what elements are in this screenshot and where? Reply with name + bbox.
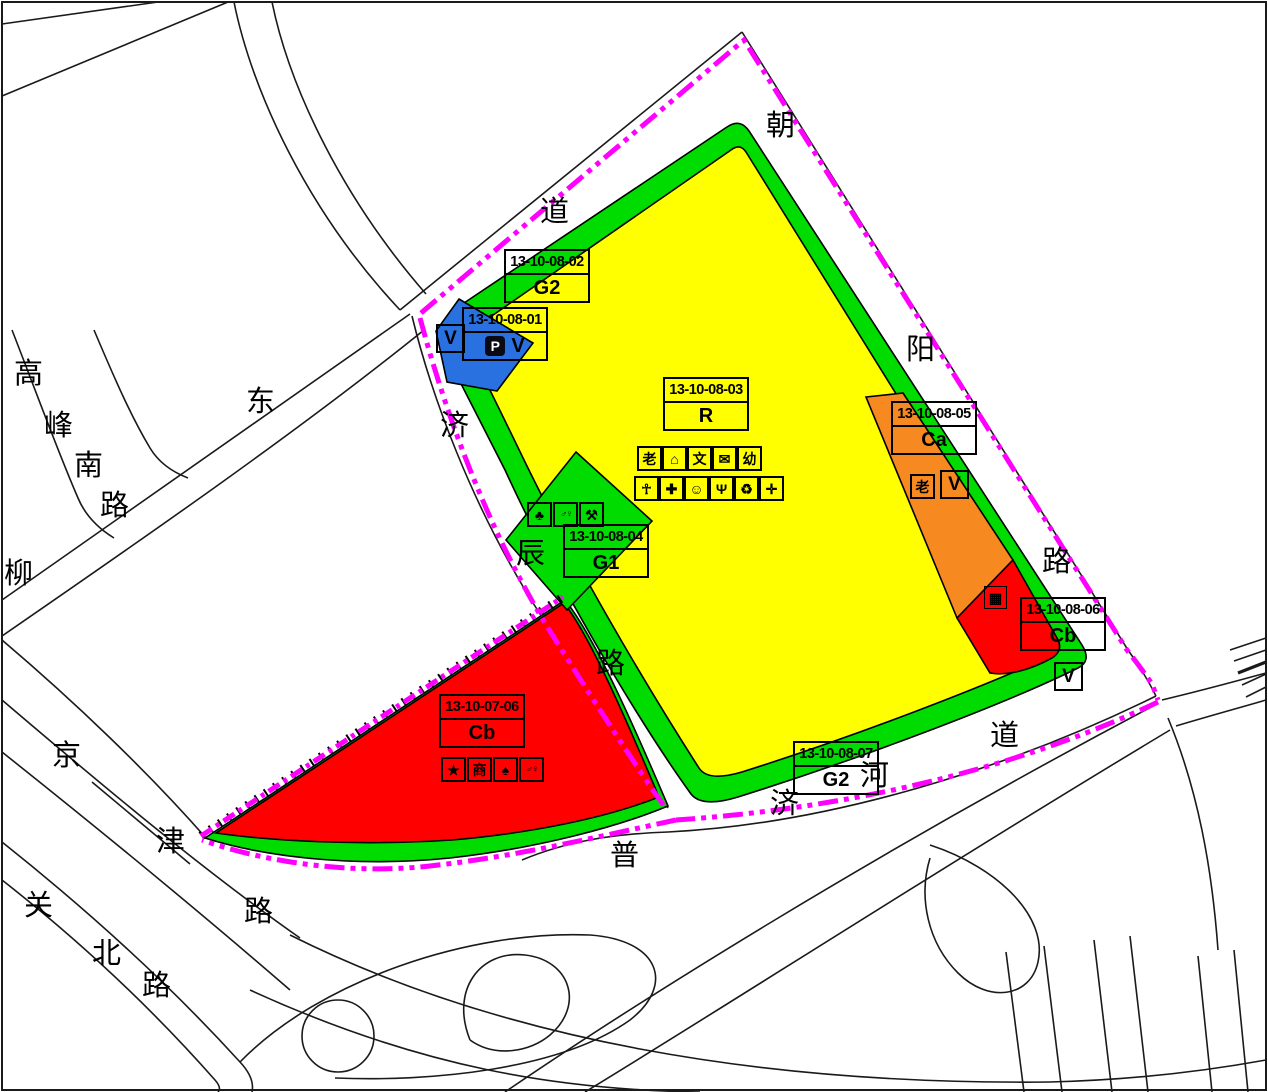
- culture-station-icon: 文: [687, 446, 712, 471]
- road-east-lane-5: [1246, 687, 1266, 697]
- road-label-guanbei-2: 北: [92, 940, 121, 969]
- road-label-dong: 东: [246, 388, 275, 417]
- road-label-jingjin-1: 京: [52, 742, 81, 771]
- road-br-2b: [1130, 936, 1148, 1092]
- road-label-dao: 道: [540, 198, 569, 227]
- parcel-code: Ca: [893, 427, 975, 453]
- road-br-3a: [1198, 956, 1212, 1092]
- parcel-code: V: [511, 333, 524, 359]
- road-label-chaoyang-2: 阳: [906, 336, 935, 365]
- star-icon: ★: [441, 757, 466, 782]
- road-highway-a: [290, 935, 1266, 1082]
- road-label-gaofengnan-1: 高: [14, 360, 43, 389]
- parcel-id: 13-10-08-06: [1022, 599, 1104, 623]
- security-icon: ♠: [493, 757, 518, 782]
- interchange-loop-2: [240, 935, 656, 1079]
- road-label-jingjin-3: 路: [244, 898, 273, 927]
- road-label-guanbei-3: 路: [142, 972, 171, 1001]
- kindergarten-icon: 幼: [737, 446, 762, 471]
- road-jingjin-1: [2, 640, 206, 838]
- parcel-id: 13-10-08-02: [506, 251, 588, 275]
- interchange-loop-3: [464, 955, 570, 1051]
- label-box-13-10-08-04: 13-10-08-04 G1: [563, 524, 649, 578]
- road-label-chaoyang-1: 朝: [766, 112, 795, 141]
- label-box-13-10-08-01: 13-10-08-01 P V: [462, 307, 548, 361]
- road-label-gaofengnan-4: 路: [100, 492, 129, 521]
- road-east-lane-1: [1230, 638, 1266, 650]
- community-home-icon: ⌂: [662, 446, 687, 471]
- market-icon: ▦: [984, 586, 1007, 609]
- road-jingjin-3: [2, 752, 290, 990]
- road-east-lane-3: [1238, 662, 1266, 673]
- road-east-1: [1162, 673, 1266, 700]
- parcel-id: 13-10-08-04: [565, 526, 647, 550]
- parcel-id: 13-10-08-03: [665, 379, 747, 403]
- road-label-pujihedao-3: 河: [860, 762, 889, 791]
- elderly-care-icon: 老: [637, 446, 662, 471]
- road-br-3b: [1234, 950, 1248, 1092]
- road-label-jichen-1: 济: [440, 412, 469, 441]
- parcel-code-row: P V: [464, 333, 546, 359]
- road-label-liu: 柳: [4, 560, 33, 589]
- road-highway-b: [250, 990, 700, 1092]
- road-topleft-2: [2, 2, 228, 96]
- parcel-id: 13-10-08-01: [464, 309, 546, 333]
- parcel-code: G1: [565, 550, 647, 576]
- sports-ground-icon: ☥: [634, 476, 659, 501]
- road-east-2: [1176, 700, 1266, 726]
- road-north-1: [234, 2, 400, 310]
- parcel-id: 13-10-08-05: [893, 403, 975, 427]
- parcel-code: Cb: [1022, 623, 1104, 649]
- road-topleft-1: [2, 2, 158, 24]
- label-box-13-10-07-06: 13-10-07-06 Cb: [439, 694, 525, 748]
- health-station-icon: ✛: [759, 476, 784, 501]
- road-label-jingjin-2: 津: [156, 828, 185, 857]
- v-corner-label-08-01: V: [436, 324, 465, 353]
- label-box-13-10-08-05: 13-10-08-05 Ca: [891, 401, 977, 455]
- road-label-gaofengnan-2: 峰: [44, 412, 73, 441]
- interchange-loop-4: [925, 845, 1039, 993]
- road-label-gaofengnan-3: 南: [74, 452, 103, 481]
- parcel-id: 13-10-07-06: [441, 696, 523, 720]
- road-label-jichen-2: 辰: [516, 540, 545, 569]
- medical-clinic-icon: ✚: [659, 476, 684, 501]
- road-label-pujihedao-1: 普: [610, 842, 639, 871]
- road-right-down: [1168, 718, 1218, 950]
- parcel-code: G2: [506, 275, 588, 301]
- road-label-guanbei-1: 关: [24, 892, 53, 921]
- road-east-lane-2: [1234, 650, 1266, 661]
- label-box-13-10-08-02: 13-10-08-02 G2: [504, 249, 590, 303]
- road-label-jichen-3: 路: [596, 650, 625, 679]
- zoning-map: 13-10-08-02 G2 V 13-10-08-01 P V 13-10-0…: [0, 0, 1268, 1092]
- road-gaofeng-2: [94, 330, 188, 478]
- road-br-1b: [1044, 946, 1062, 1092]
- waste-collection-icon: ♻: [734, 476, 759, 501]
- parcel-code: Cb: [441, 720, 523, 746]
- elderly-icon: 老: [910, 474, 935, 499]
- road-br-2a: [1094, 940, 1112, 1092]
- parking-icon: P: [485, 336, 505, 356]
- public-toilet-icon: ♂♀: [519, 757, 544, 782]
- road-dong-2: [2, 330, 424, 636]
- road-label-chaoyang-3: 路: [1042, 548, 1071, 577]
- parcel-code: R: [665, 403, 747, 429]
- road-label-pujihedao-4: 道: [990, 722, 1019, 751]
- v-utility-icon: V: [940, 470, 969, 499]
- restaurant-icon: Ψ: [709, 476, 734, 501]
- road-guanbei-1: [2, 842, 253, 1092]
- label-box-13-10-08-06: 13-10-08-06 Cb: [1020, 597, 1106, 651]
- label-box-13-10-08-03: 13-10-08-03 R: [663, 377, 749, 431]
- community-service-icon: ☺: [684, 476, 709, 501]
- v-corner-label-08-06: V: [1054, 662, 1083, 691]
- road-label-pujihedao-2: 济: [770, 790, 799, 819]
- road-dong-1: [2, 314, 410, 600]
- park-pavilion-icon: ♣: [527, 502, 552, 527]
- post-office-icon: ✉: [712, 446, 737, 471]
- commerce-icon: 商: [467, 757, 492, 782]
- road-br-1a: [1006, 952, 1024, 1092]
